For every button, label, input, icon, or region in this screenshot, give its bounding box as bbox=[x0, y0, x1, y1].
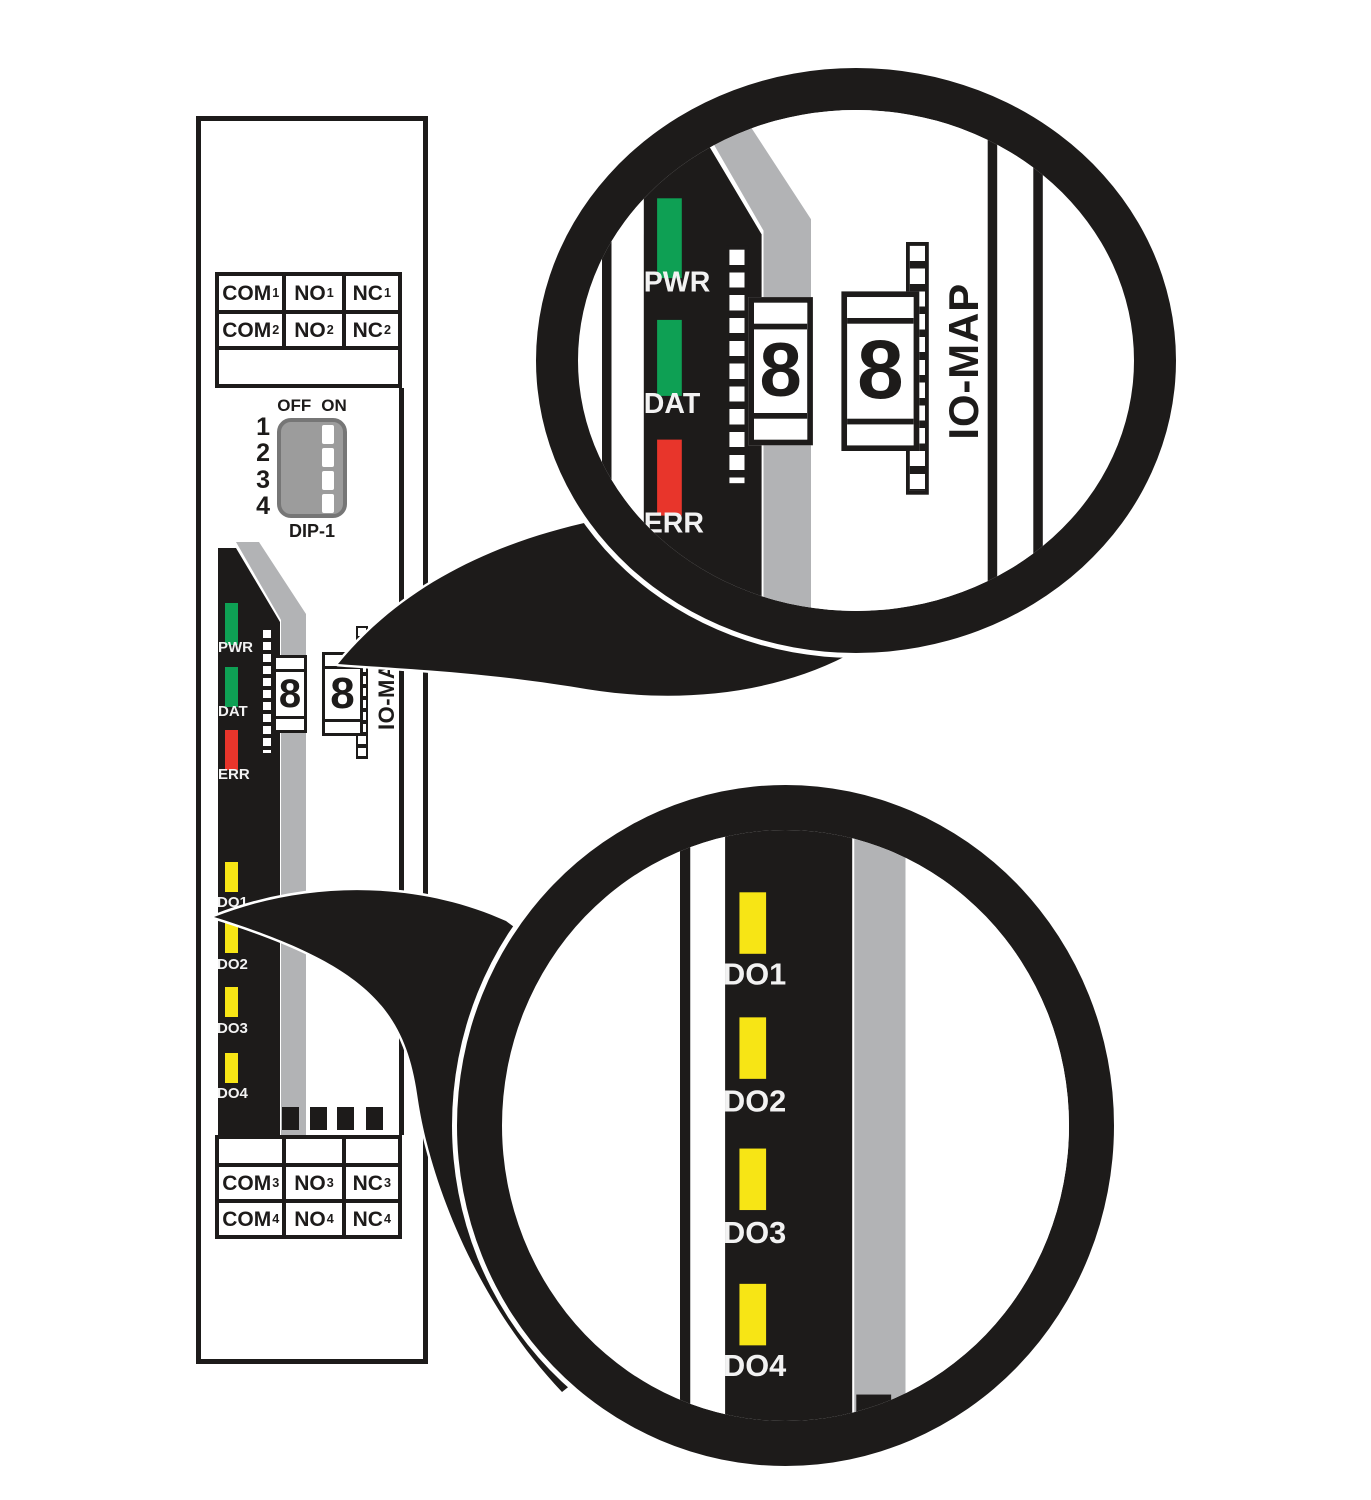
do2-led-label: DO2 bbox=[723, 1087, 786, 1118]
thumbwheel-rack-left bbox=[726, 246, 749, 487]
module-front-view: COM1 NO1 NC1 COM2 NO2 NC2 OFF ON 1 2 3 4… bbox=[680, 785, 1114, 1466]
err-led-label: ERR bbox=[644, 510, 704, 539]
thumbwheel-window-top bbox=[847, 297, 914, 324]
thumbwheel-left: 8 bbox=[748, 297, 813, 445]
do4-led-label: DO4 bbox=[723, 1352, 786, 1383]
module-front-view: COM1 NO1 NC1 COM2 NO2 NC2 OFF ON 1 2 3 4… bbox=[602, 68, 1043, 653]
diagram-canvas: COM1 NO1 NC1 COM2 NO2 NC2 OFF ON 1 2 3 4… bbox=[0, 0, 1371, 1500]
do4-led bbox=[739, 1284, 766, 1346]
do1-led bbox=[739, 892, 766, 954]
thumbwheel-window-bottom bbox=[847, 419, 914, 446]
do2-led bbox=[739, 1017, 766, 1079]
magnifier-bottom-circle: COM1 NO1 NC1 COM2 NO2 NC2 OFF ON 1 2 3 4… bbox=[457, 785, 1114, 1466]
do3-led bbox=[739, 1149, 766, 1211]
thumbwheel-right: 8 bbox=[841, 291, 919, 451]
dat-led-label: DAT bbox=[644, 390, 700, 419]
thumbwheel-window-top bbox=[754, 303, 807, 330]
dat-led bbox=[657, 320, 682, 396]
do3-led-label: DO3 bbox=[723, 1218, 786, 1249]
err-led bbox=[657, 440, 682, 516]
thumbwheel-left-digit: 8 bbox=[754, 329, 807, 413]
thumbwheel-right-digit: 8 bbox=[847, 324, 914, 419]
thumbwheel-window-bottom bbox=[754, 413, 807, 440]
io-map-label: IO-MAP bbox=[940, 283, 989, 440]
do1-led-label: DO1 bbox=[723, 960, 786, 991]
magnifier-top-circle: COM1 NO1 NC1 COM2 NO2 NC2 OFF ON 1 2 3 4… bbox=[536, 68, 1176, 653]
pwr-led-label: PWR bbox=[644, 269, 711, 298]
connector-block bbox=[856, 1395, 891, 1442]
